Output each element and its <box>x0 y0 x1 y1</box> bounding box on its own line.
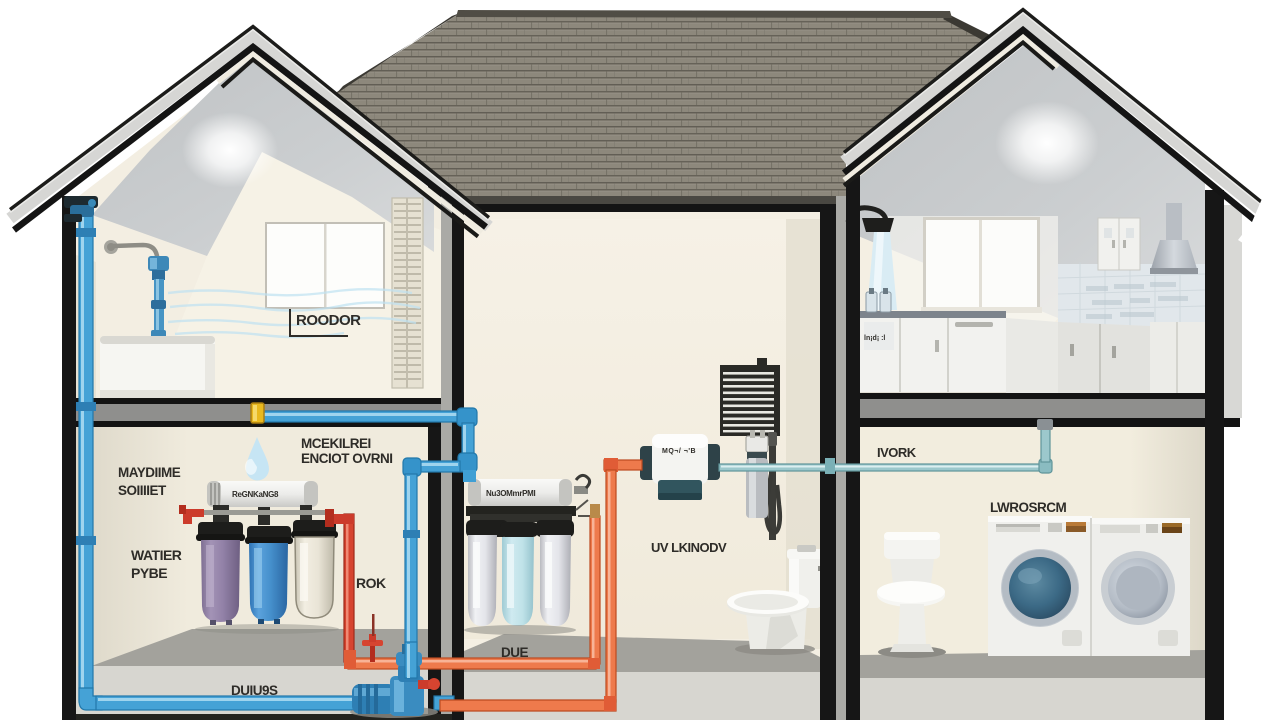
svg-text:ENCIOT OVRNI: ENCIOT OVRNI <box>301 451 393 466</box>
svg-text:MAYDIIME: MAYDIIME <box>118 465 181 480</box>
svg-text:PYBE: PYBE <box>131 565 167 581</box>
svg-text:DUIU9S: DUIU9S <box>231 683 278 698</box>
svg-text:Nu3OMmrPMl: Nu3OMmrPMl <box>486 489 536 498</box>
svg-text:MQ¬/ ¬'B: MQ¬/ ¬'B <box>662 448 696 455</box>
svg-text:SOIIIIET: SOIIIIET <box>118 483 167 498</box>
svg-text:ROK: ROK <box>356 575 386 591</box>
svg-text:WATIER: WATIER <box>131 547 182 563</box>
svg-text:ReGNKaNG8: ReGNKaNG8 <box>232 490 279 499</box>
svg-text:MCEKILREI: MCEKILREI <box>301 436 371 451</box>
svg-text:IVORK: IVORK <box>877 445 917 460</box>
svg-text:DUE: DUE <box>501 645 528 660</box>
svg-text:UV LKINODV: UV LKINODV <box>651 540 727 555</box>
svg-text:ROODOR: ROODOR <box>296 312 361 329</box>
svg-text:LWROSRCM: LWROSRCM <box>990 500 1066 515</box>
svg-text:ln¡d¡ :l: ln¡d¡ :l <box>864 335 885 342</box>
